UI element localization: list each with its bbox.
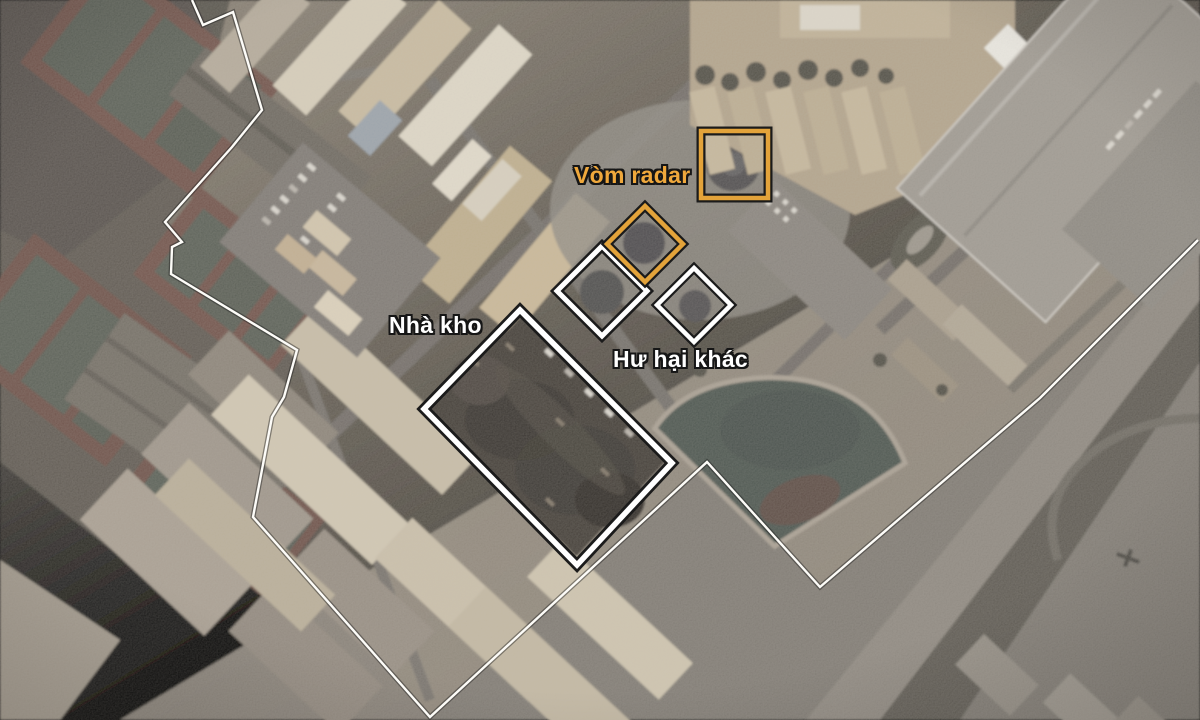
radar-dome-label: Vòm radar (574, 164, 688, 187)
vignette-overlay (0, 0, 1200, 720)
annotated-satellite-map: Vòm radar Nhà kho Hư hại khác (0, 0, 1200, 720)
warehouse-label: Nhà kho (389, 314, 482, 337)
other-damage-label: Hư hại khác (613, 348, 748, 371)
satellite-imagery (0, 0, 1200, 720)
